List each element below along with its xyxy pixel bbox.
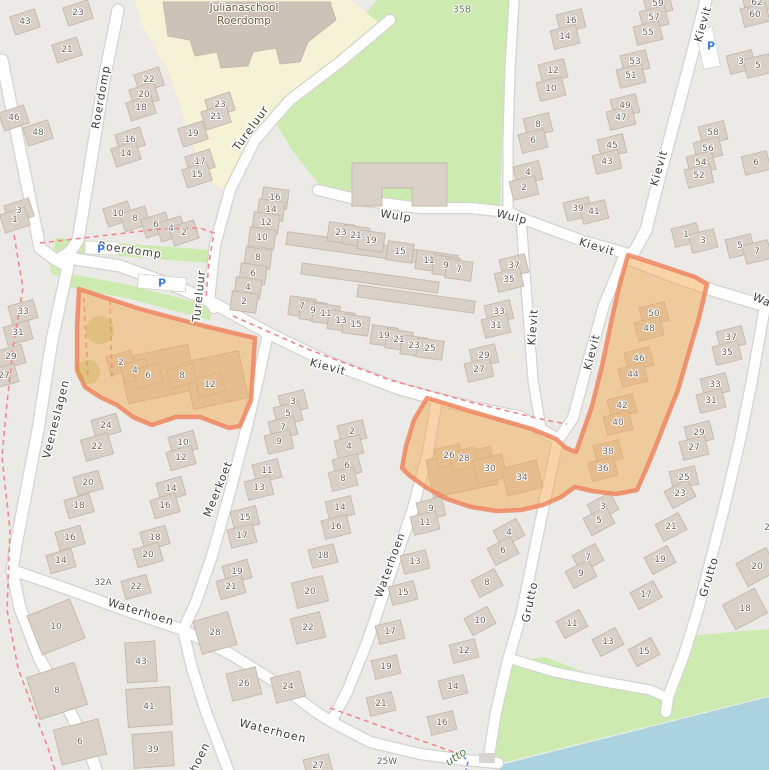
house-number: 21 (225, 582, 236, 592)
house-number: 48 (643, 324, 655, 334)
house-number: 39 (572, 204, 584, 214)
house-number: 5 (755, 61, 761, 71)
house-number: 62 (751, 0, 762, 8)
house-number: 7 (456, 265, 462, 275)
house-number: 10 (50, 622, 62, 632)
house-number: 21 (350, 231, 361, 241)
house-number: 6 (145, 371, 151, 381)
house-number: 7 (754, 247, 760, 257)
house-number: 11 (419, 518, 430, 528)
house-number: 8 (340, 474, 346, 484)
house-number: 44 (627, 370, 639, 380)
house-number: 4 (168, 224, 174, 234)
parking-icon: P (158, 277, 166, 290)
house-number: 58 (707, 128, 719, 138)
house-number: 40 (612, 418, 624, 428)
house-number: 37 (725, 333, 736, 343)
house-number: 52 (693, 171, 704, 181)
house-number: 18 (317, 551, 329, 561)
house-number: 15 (397, 588, 408, 598)
house-number: 21 (61, 45, 72, 55)
tree-canopy (86, 316, 114, 344)
house-number: 8 (484, 578, 490, 588)
house-number: 25W (377, 757, 397, 767)
house-number: 42 (616, 401, 627, 411)
house-number: 14 (334, 503, 346, 513)
school-label: Roerdomp (217, 15, 271, 27)
dock (479, 753, 495, 763)
house-number: 2 (118, 358, 124, 368)
house-number: 19 (380, 662, 392, 672)
house-number: 16 (64, 533, 76, 543)
house-number: 23 (335, 228, 346, 238)
house-number: 50 (648, 309, 660, 319)
house-number: 19 (187, 129, 199, 139)
house-number: 6 (153, 220, 159, 230)
house-number: 16 (330, 522, 342, 532)
house-number: 17 (194, 157, 205, 167)
house-number: 1 (12, 215, 18, 225)
house-number: 41 (143, 702, 154, 712)
house-number: 23 (214, 100, 225, 110)
house-number: 46 (8, 113, 20, 123)
house-number: 27 (688, 443, 699, 453)
house-number: 35 (503, 275, 514, 285)
house-number: 51 (625, 71, 636, 81)
house-number: 23 (674, 489, 685, 499)
house-number: 59 (652, 0, 664, 9)
house-number: 4 (525, 168, 531, 178)
house-number: 13 (253, 483, 264, 493)
house-number: 29 (693, 428, 705, 438)
house-number: 23 (408, 341, 419, 351)
house-number: 57 (648, 13, 659, 23)
house-number: 7 (299, 302, 305, 312)
house-number: 21 (393, 335, 404, 345)
house-number: 10 (112, 209, 124, 219)
house-number: 14 (447, 682, 459, 692)
house-number: 4 (346, 442, 352, 452)
house-number: 3 (600, 502, 606, 512)
house-number: 4 (506, 528, 512, 538)
house-number: 19 (654, 555, 666, 565)
house-number: 30 (484, 464, 496, 474)
house-number: 14 (120, 149, 132, 159)
osm-map-canvas[interactable]: 4323214648312220181614232119171510864216… (0, 0, 769, 770)
house-number: 26 (238, 679, 250, 689)
house-number: 49 (619, 101, 631, 111)
house-number: 9 (428, 504, 434, 514)
house-number: 2 (241, 297, 247, 307)
house-number: 15 (191, 170, 202, 180)
house-number: 6 (530, 136, 536, 146)
house-number: 3 (290, 397, 296, 407)
house-number: 1 (683, 230, 689, 240)
parking-icon: P (97, 243, 105, 256)
house-number: 28 (209, 628, 221, 638)
house-number: 9 (276, 437, 282, 447)
house-number: 15 (394, 247, 405, 257)
tree-canopy (76, 360, 100, 384)
house-number: 14 (55, 556, 67, 566)
house-number: 20 (751, 562, 763, 572)
house-number: 15 (239, 513, 250, 523)
house-number: 53 (629, 57, 640, 67)
house-number: 6 (344, 461, 350, 471)
house-number: 8 (132, 214, 138, 224)
house-number: 20 (82, 478, 94, 488)
house-number: 9 (578, 569, 584, 579)
house-number: 37 (508, 261, 519, 271)
house-number: 20 (138, 90, 150, 100)
house-number: 11 (423, 256, 434, 266)
house-number: 18 (739, 604, 751, 614)
house-number: 22 (143, 75, 154, 85)
house-number: 8 (535, 120, 541, 130)
house-number: 13 (602, 637, 613, 647)
house-number: 12 (547, 66, 558, 76)
house-number: 9 (310, 306, 316, 316)
house-number: 38 (602, 447, 614, 457)
house-number: 13 (409, 557, 420, 567)
house-number: 19 (365, 236, 377, 246)
house-number: 4 (245, 283, 251, 293)
house-number: 27 (473, 365, 484, 375)
house-number: 7 (280, 423, 286, 433)
house-number: 60 (749, 10, 761, 20)
house-number: 25 (678, 473, 689, 483)
house-number: 9 (443, 261, 449, 271)
house-number: 17 (640, 590, 651, 600)
house-number: 7 (585, 553, 591, 563)
house-number: 21 (375, 699, 386, 709)
house-number: 31 (12, 328, 23, 338)
house-number: 20 (142, 550, 154, 560)
house-number: 21 (210, 112, 221, 122)
house-number: 3 (738, 57, 744, 67)
house-number: 24 (282, 682, 294, 692)
house-number: 31 (490, 321, 501, 331)
house-number: 28 (458, 454, 470, 464)
school-label: Julianaschool (209, 2, 279, 14)
house-number: 48 (32, 128, 44, 138)
house-number: 10 (177, 438, 189, 448)
house-number: 35 (721, 348, 732, 358)
parking-icon: P (707, 40, 715, 53)
house-number: 8 (179, 371, 185, 381)
house-number: 16 (159, 501, 171, 511)
house-number: 2 (181, 228, 187, 238)
house-number: 27 (312, 761, 323, 770)
house-number: 45 (606, 141, 617, 151)
house-number: 17 (384, 627, 395, 637)
house-number: 29 (5, 352, 17, 362)
house-number: 19 (378, 331, 390, 341)
house-number: 5 (596, 516, 602, 526)
house-number: 11 (320, 309, 331, 319)
house-number: 55 (642, 28, 653, 38)
house-number: 12 (204, 380, 215, 390)
house-number: 14 (265, 205, 277, 215)
house-number: 54 (695, 158, 707, 168)
house-number: 12 (175, 453, 186, 463)
house-number: 43 (19, 17, 30, 27)
house-number: 8 (255, 253, 261, 263)
house-number: 18 (73, 501, 85, 511)
house-number: 43 (601, 157, 612, 167)
house-number: 25 (424, 344, 435, 354)
house-number: 13 (335, 316, 346, 326)
house-number: 23 (72, 8, 83, 18)
house-number: 10 (256, 233, 268, 243)
house-number: 16 (124, 135, 136, 145)
house-number: 6 (250, 269, 256, 279)
house-number: 16 (436, 718, 448, 728)
house-number: 22 (130, 582, 141, 592)
house-number: 15 (350, 320, 361, 330)
house-number: 2 (349, 427, 355, 437)
house-number: 2 (521, 183, 527, 193)
house-number: 18 (135, 103, 147, 113)
house-number: 5 (737, 241, 743, 251)
house-number: 10 (474, 616, 486, 626)
house-number: 14 (165, 484, 177, 494)
house-number: 16 (565, 16, 577, 26)
house-number: 34 (516, 473, 528, 483)
house-number: 21 (665, 522, 676, 532)
house-number: 41 (588, 207, 599, 217)
house-number: 29 (478, 351, 490, 361)
house-number: 46 (633, 354, 645, 364)
house-number: 8 (54, 686, 60, 696)
house-number: 24 (100, 421, 112, 431)
house-number: 10 (545, 84, 557, 94)
house-number: 33 (709, 380, 720, 390)
house-number: 16 (269, 193, 281, 203)
house-number: 12 (458, 646, 469, 656)
house-number: 17 (236, 531, 247, 541)
house-number: 31 (705, 396, 716, 406)
house-number: 22 (91, 442, 102, 452)
house-number: 22 (302, 623, 313, 633)
house-number: 11 (261, 466, 272, 476)
street-label: Kievit (525, 308, 541, 346)
house-number: 5 (285, 409, 291, 419)
house-number: 3 (700, 236, 706, 246)
house-number: 47 (615, 113, 626, 123)
house-number: 43 (135, 657, 146, 667)
house-number: 26 (443, 451, 455, 461)
house-number: 15 (638, 647, 649, 657)
house-number: 39 (147, 745, 159, 755)
house-number: 33 (493, 307, 504, 317)
house-number: 12 (260, 218, 271, 228)
house-number: 6 (77, 737, 83, 747)
house-number: 33 (17, 307, 28, 317)
house-number: 6 (753, 158, 759, 168)
house-number: 27 (0, 371, 10, 381)
house-number: 6 (500, 546, 506, 556)
house-number: 18 (149, 533, 161, 543)
house-number: 11 (566, 619, 577, 629)
house-number: 36 (597, 464, 609, 474)
area-label: 35B (453, 5, 472, 16)
house-number: 14 (559, 32, 571, 42)
house-number: 2 (764, 523, 769, 533)
map-viewport[interactable]: 4323214648312220181614232119171510864216… (0, 0, 769, 770)
house-number: 20 (304, 587, 316, 597)
house-number: 32A (94, 578, 112, 588)
house-number: 56 (702, 144, 714, 154)
house-number: 4 (132, 366, 138, 376)
house-number: 19 (231, 567, 243, 577)
